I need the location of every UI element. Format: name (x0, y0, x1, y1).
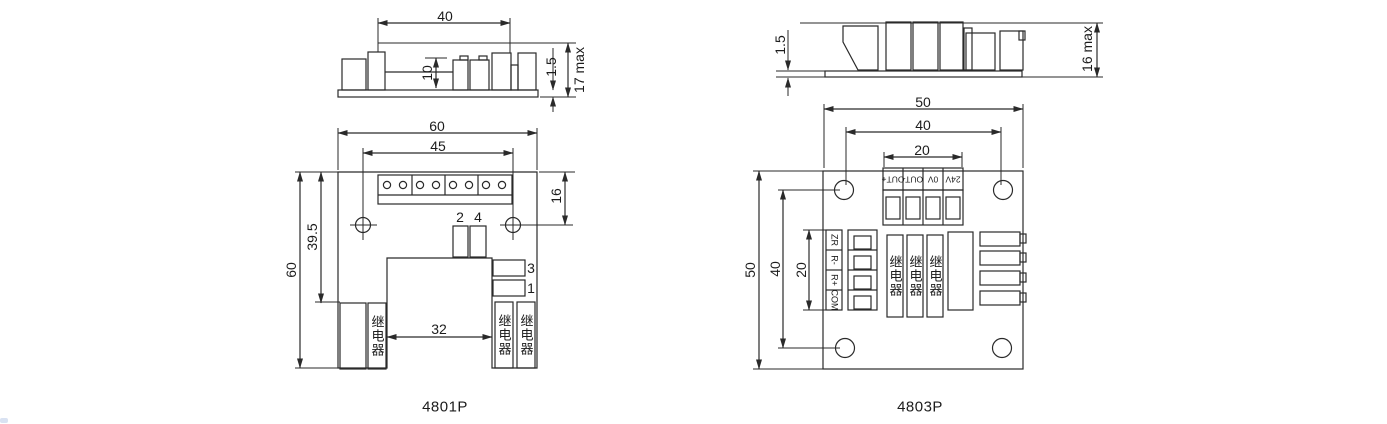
dim-label-16-max: 16 max (1080, 26, 1094, 72)
technical-drawing-svg (0, 0, 1387, 424)
dim-label-width-40: 40 (437, 9, 453, 23)
dim-label-board-height-50: 50 (743, 262, 757, 278)
technical-drawing-page: 40 10 1.5 17 max 60 45 16 39.5 60 32 2 4… (0, 0, 1387, 424)
component-pin2 (453, 226, 468, 257)
dim-label-17-max: 17 max (572, 47, 586, 93)
pcb-strip (338, 90, 538, 97)
drawing-title-4801p: 4801P (422, 400, 468, 415)
terminal-block-4801p (378, 175, 512, 204)
io-label-zr: ZR (830, 234, 839, 246)
io-label-r-minus: R- (830, 255, 839, 265)
dim-label-hole-spacing-45: 45 (430, 139, 446, 153)
dim-label-notch-32: 32 (431, 322, 447, 336)
io-label-com: COM (830, 290, 839, 311)
screen-artifact (0, 418, 8, 423)
dim-label-39-5: 39.5 (305, 223, 319, 250)
relay-label-3: 继电器 (927, 235, 943, 317)
pcb-strip (825, 71, 1022, 77)
dim-label-pcb-1-5-right: 1.5 (773, 35, 787, 54)
mounting-hole-left (350, 148, 377, 240)
terminal-block-profile (843, 26, 878, 70)
dim-label-terminal-20: 20 (914, 143, 930, 157)
relay-label-1: 继电器 (368, 303, 386, 369)
component-block (340, 303, 366, 369)
pin-label-1: 1 (527, 281, 535, 295)
relay-label-2: 继电器 (495, 302, 513, 368)
relay-label-2: 继电器 (907, 235, 923, 317)
component-block (948, 232, 973, 310)
component-pin3 (493, 260, 525, 276)
dim-label-board-width-60: 60 (429, 119, 445, 133)
pin-label-4: 4 (474, 210, 482, 224)
dim-label-hole-spacing-v-40: 40 (768, 261, 782, 277)
dim-label-height-10: 10 (420, 65, 434, 81)
board-4801p-side-view (338, 18, 576, 112)
dim-label-board-height-60: 60 (284, 262, 298, 278)
terminal-label-out-plus: OUT+ (882, 175, 905, 184)
terminal-label-0v: 0V (928, 175, 938, 184)
dim-label-board-width-50: 50 (915, 95, 931, 109)
mounting-hole-top-right (994, 181, 1013, 200)
relay-label-3: 继电器 (517, 302, 535, 368)
board-4803p-side-view (776, 22, 1103, 96)
dim-label-hole-spacing-40: 40 (915, 118, 931, 132)
component-pin1 (493, 280, 525, 296)
drawing-title-4803p: 4803P (897, 400, 943, 415)
dim-label-terminal-height-20: 20 (794, 262, 808, 278)
io-label-r-plus: R+ (830, 274, 839, 286)
pin-label-2: 2 (456, 210, 464, 224)
dim-label-edge-16: 16 (549, 188, 563, 204)
relay-label-1: 继电器 (887, 235, 903, 317)
pin-label-3: 3 (527, 261, 535, 275)
edge-connectors (980, 232, 1026, 305)
component-pin4 (470, 226, 486, 257)
terminal-label-24v: 24V (945, 175, 960, 184)
mounting-hole-bottom-right (993, 339, 1012, 358)
terminal-label-out-minus: OUT- (903, 175, 923, 184)
dim-label-pcb-1-5: 1.5 (544, 57, 558, 76)
